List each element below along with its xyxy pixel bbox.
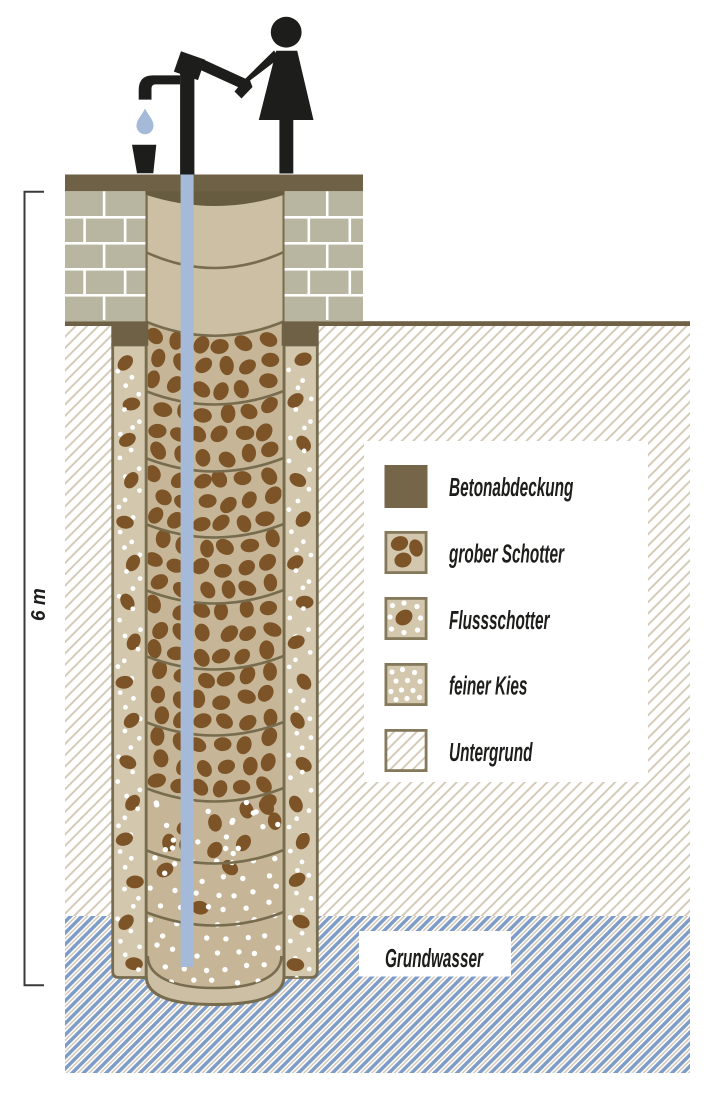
svg-text:Untergrund: Untergrund [449, 738, 533, 767]
svg-text:Betonabdeckung: Betonabdeckung [449, 473, 573, 502]
svg-text:Grundwasser: Grundwasser [385, 944, 484, 973]
svg-text:6 m: 6 m [28, 588, 51, 621]
svg-text:Flussschotter: Flussschotter [449, 606, 551, 635]
svg-text:grober Schotter: grober Schotter [448, 539, 565, 568]
svg-text:feiner Kies: feiner Kies [449, 671, 527, 700]
